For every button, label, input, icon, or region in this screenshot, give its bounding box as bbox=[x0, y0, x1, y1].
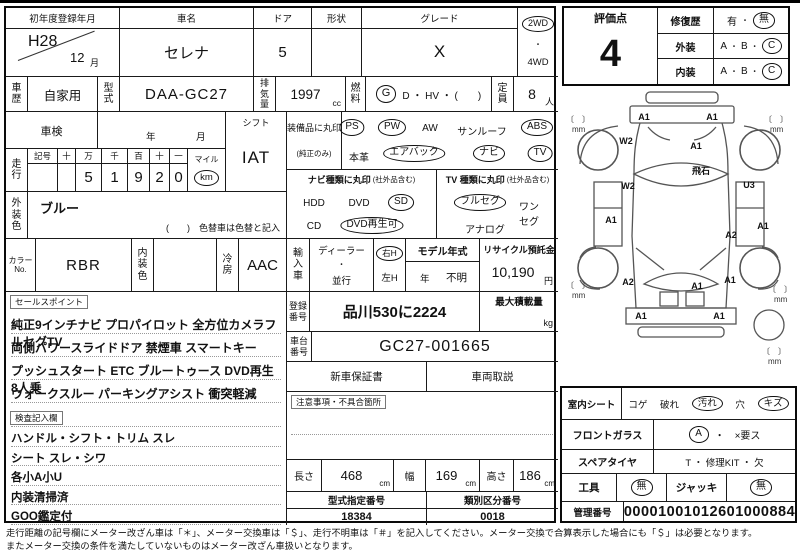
car-damage-diagram: A1 A1 W2 A1 飛石 W2 U3 A1 A1 A2 A2 A1 A1 A… bbox=[560, 86, 797, 386]
model-year-unit: 年 bbox=[420, 271, 430, 285]
grade-value: X bbox=[362, 29, 517, 75]
windshield-grade-a: A bbox=[689, 426, 709, 443]
repair-history-row: 修復歴 有 ・ 無 bbox=[658, 8, 788, 34]
color-no-label: カラーNo. bbox=[6, 239, 36, 292]
tools-value-cell: 無 bbox=[617, 474, 667, 501]
interior-label: 内装 bbox=[658, 59, 714, 84]
shift-cell: シフト IAT bbox=[226, 112, 287, 192]
height-unit: cm bbox=[544, 479, 555, 488]
max-load-cell: 最大積載量 kg bbox=[480, 292, 558, 332]
body-outline bbox=[632, 123, 730, 308]
repair-history-options: 有 ・ 無 bbox=[714, 8, 788, 33]
reg-date-cell: 初年度登録年月 H28 12 月 bbox=[6, 8, 120, 76]
model-code-value: DAA-GC27 bbox=[120, 76, 254, 112]
mm-bracket-spare: 〔 〕 bbox=[762, 347, 786, 356]
equip-navi: ナビ bbox=[473, 145, 505, 162]
exterior-options: A ・ B ・ C bbox=[714, 34, 788, 58]
repair-history-label: 修復歴 bbox=[658, 8, 714, 33]
displacement-unit: cc bbox=[333, 98, 342, 108]
car-name-cell: 車名 セレナ bbox=[120, 8, 254, 76]
grade-a: A bbox=[720, 41, 727, 52]
inspection-year-unit: 年 bbox=[146, 129, 156, 143]
equip-abs: ABS bbox=[521, 119, 553, 136]
rear-pillar-right bbox=[700, 248, 726, 270]
mileage-unit-cell: マイル km bbox=[188, 149, 226, 192]
mm-unit-spare: mm bbox=[768, 357, 782, 366]
mm-unit-mid-right: mm bbox=[774, 295, 788, 304]
warranty-cell: 新車保証書 bbox=[287, 362, 427, 392]
handle-cell: 右H 左H bbox=[374, 239, 406, 292]
length-cell: 468 cm bbox=[322, 460, 394, 492]
capacity-unit: 人 bbox=[545, 95, 554, 108]
score-cell: 評価点 4 bbox=[564, 8, 658, 84]
jack-value: 無 bbox=[750, 479, 772, 496]
sep-dot: ・ bbox=[730, 41, 738, 52]
width-unit: cm bbox=[465, 479, 476, 488]
mileage-mile-label: マイル bbox=[195, 154, 219, 165]
mileage-km-label: km bbox=[194, 170, 219, 186]
import-dealer: ディーラー bbox=[318, 243, 365, 257]
type-number-cell: 型式指定番号 18384 bbox=[287, 492, 427, 525]
drive-4wd: 4WD bbox=[527, 57, 548, 68]
equip-aw: AW bbox=[422, 123, 438, 134]
height-cell: 186 cm bbox=[514, 460, 558, 492]
mileage-header-10: 十 bbox=[150, 149, 170, 164]
drive-sep: ・ bbox=[534, 39, 542, 50]
sales-point-line: ウォークスルー パーキングアシスト 衝突軽減 bbox=[11, 380, 281, 403]
top-rule bbox=[0, 0, 800, 3]
displacement-label: 排気量 bbox=[254, 76, 276, 112]
equip-airbag: エアバック bbox=[383, 145, 445, 162]
recycle-label: リサイクル預託金 bbox=[480, 239, 558, 259]
mileage-digit-100k bbox=[58, 164, 76, 192]
navi-type-label: ナビ種類に丸印 bbox=[308, 173, 371, 186]
type-number-label: 型式指定番号 bbox=[287, 492, 426, 509]
chassis-value: GC27-001665 bbox=[312, 332, 558, 362]
capacity-label: 定員 bbox=[492, 76, 514, 112]
equip-sunroof: サンルーフ bbox=[457, 123, 506, 138]
shape-cell: 形状 bbox=[312, 8, 362, 76]
windshield-rest: ・ ×要ス bbox=[715, 427, 761, 442]
damage-front-fender-left: W2 bbox=[619, 136, 633, 146]
handle-left: 左H bbox=[381, 270, 397, 284]
tools-value: 無 bbox=[631, 479, 653, 496]
inspector-note-line: シート スレ・シワ bbox=[11, 447, 281, 467]
equipment-label: 装備品に丸印 bbox=[287, 123, 341, 134]
displacement-cell: 1997 cc bbox=[276, 76, 346, 112]
navi-dvd: DVD bbox=[348, 198, 369, 209]
damage-front-bumper-right: A1 bbox=[706, 112, 718, 122]
ac-value: AAC bbox=[239, 239, 287, 292]
wiper-arc-right bbox=[694, 127, 716, 140]
inspector-notes-label: 検査記入欄 bbox=[10, 411, 63, 425]
damage-side-left: W2 bbox=[621, 181, 635, 191]
height-label: 高さ bbox=[480, 460, 514, 492]
class-number-cell: 類別区分番号 0018 bbox=[427, 492, 558, 525]
length-unit: cm bbox=[379, 479, 390, 488]
footer-notes: 走行距離の記号欄にメーター改ざん車は「＊」、メーター交換車は「＄」、走行不明車は… bbox=[6, 527, 798, 554]
capacity-cell: 8 人 bbox=[514, 76, 558, 112]
grade-c: C bbox=[762, 38, 782, 55]
spare-tire-label: スペアタイヤ bbox=[562, 450, 654, 473]
model-code-label: 型式 bbox=[98, 76, 120, 112]
repair-no: 無 bbox=[753, 12, 775, 29]
seat-label: 室内シート bbox=[562, 388, 622, 419]
inspector-note-line: GOO鑑定付 bbox=[11, 505, 281, 525]
inspection-label: 車検 bbox=[6, 112, 98, 149]
fuel-label: 燃料 bbox=[346, 76, 366, 112]
handle-right: 右H bbox=[376, 246, 403, 261]
history-label: 車歴 bbox=[6, 76, 28, 112]
damage-side-right-lower: A1 bbox=[757, 221, 769, 231]
interior-color-label: 内装色 bbox=[132, 239, 154, 292]
mileage-digit-10k: 5 bbox=[76, 164, 102, 192]
tv-oneseg: ワンセグ bbox=[519, 198, 545, 228]
grade-cell: グレード X bbox=[362, 8, 518, 76]
model-year-label: モデル年式 bbox=[406, 239, 479, 262]
seat-burn: コゲ bbox=[628, 397, 647, 411]
front-right-wheel bbox=[740, 130, 780, 170]
history-value: 自家用 bbox=[28, 76, 98, 112]
door-label: ドア bbox=[254, 8, 311, 29]
notes-label: 注意事項・不具合箇所 bbox=[291, 395, 386, 409]
body-color-cell: 外装色 ブルー ( ) 色替車は色替と記入 bbox=[6, 192, 287, 239]
mileage-header-10k: 万 bbox=[76, 149, 102, 164]
exterior-grade-row: 外装 A ・ B ・ C bbox=[658, 34, 788, 59]
management-value: 00001001012601000884 bbox=[624, 502, 795, 521]
seat-scratch: キズ bbox=[758, 396, 789, 412]
management-row: 管理番号 00001001012601000884 bbox=[562, 502, 795, 521]
reg-year: H28 bbox=[28, 33, 57, 51]
grade-b: B bbox=[741, 41, 748, 52]
navi-type-note: (社外品含む) bbox=[373, 174, 416, 185]
mm-unit-top-left: mm bbox=[572, 125, 586, 134]
equipment-box: 装備品に丸印 (純正のみ) PS PW AW サンルーフ ABS 本革 エアバッ… bbox=[287, 112, 558, 170]
notes-line bbox=[291, 434, 553, 435]
drive-2wd: 2WD bbox=[522, 16, 554, 31]
mileage-digit-1: 0 bbox=[170, 164, 188, 192]
jack-value-cell: 無 bbox=[727, 474, 795, 501]
damage-quarter-left: A2 bbox=[622, 277, 634, 287]
max-load-label: 最大積載量 bbox=[480, 292, 558, 309]
repair-yes: 有 bbox=[727, 13, 737, 28]
drive-cell: 2WD ・ 4WD bbox=[518, 8, 558, 76]
mileage-header-1k: 千 bbox=[102, 149, 128, 164]
windshield-row: フロントガラス A ・ ×要ス bbox=[562, 420, 795, 450]
mm-bracket-top-left: 〔 〕 bbox=[566, 115, 590, 124]
score-value: 4 bbox=[564, 28, 657, 80]
rear-panel-right bbox=[686, 292, 704, 306]
shift-value: IAT bbox=[226, 130, 286, 186]
sep-dot: ・ bbox=[741, 15, 749, 26]
inspector-notes-list: ハンドル・シフト・トリム スレ シート スレ・シワ 各小A小U 内装清掃済 GO… bbox=[11, 427, 281, 525]
class-number-label: 類別区分番号 bbox=[427, 492, 558, 509]
navi-type-box: ナビ種類に丸印 (社外品含む) HDD DVD SD CD DVD再生可 bbox=[287, 170, 437, 239]
seat-stain: 汚れ bbox=[692, 396, 723, 412]
mileage-header-1: 一 bbox=[170, 149, 188, 164]
width-cell: 169 cm bbox=[426, 460, 480, 492]
equipment-label-note: (純正のみ) bbox=[297, 148, 332, 159]
left-side-strip bbox=[594, 182, 622, 246]
body-color-value: ブルー bbox=[40, 198, 79, 217]
vehicle-auction-sheet: 初年度登録年月 H28 12 月 車名 セレナ ドア 5 形状 グレード X 2… bbox=[0, 0, 800, 557]
exterior-label: 外装 bbox=[658, 34, 714, 58]
registration-value: 品川530に2224 bbox=[310, 292, 480, 332]
sales-point-line: 純正9インチナビ プロパイロット 全方位カメラフルセグTV bbox=[11, 311, 281, 334]
tv-type-label: TV 種類に丸印 bbox=[446, 173, 505, 186]
inspector-note-line: ハンドル・シフト・トリム スレ bbox=[11, 427, 281, 447]
door-cell: ドア 5 bbox=[254, 8, 312, 76]
spare-tire-circle bbox=[754, 310, 784, 340]
sep-dot: ・ bbox=[751, 66, 759, 77]
damage-side-right: U3 bbox=[743, 180, 755, 190]
front-top-bar bbox=[646, 92, 718, 103]
car-name-value: セレナ bbox=[120, 29, 253, 75]
damage-rear-bumper-left: A1 bbox=[635, 311, 647, 321]
windshield-shape bbox=[634, 163, 728, 186]
recycle-unit: 円 bbox=[544, 274, 553, 287]
mileage-sign bbox=[28, 164, 58, 192]
mm-bracket-top-right: 〔 〕 bbox=[764, 115, 788, 124]
reg-month: 12 bbox=[70, 50, 84, 65]
mm-bracket-mid-left: 〔 〕 bbox=[566, 281, 590, 290]
rear-bottom-bar bbox=[638, 327, 724, 337]
shape-value bbox=[312, 29, 361, 75]
navi-sd: SD bbox=[388, 194, 414, 211]
tv-fullseg: フルセグ bbox=[454, 194, 506, 211]
score-label: 評価点 bbox=[564, 8, 657, 28]
mm-unit-mid-left: mm bbox=[572, 291, 586, 300]
interior-color-value bbox=[154, 239, 217, 292]
seat-row: 室内シート コゲ 破れ 汚れ 穴 キズ bbox=[562, 388, 795, 420]
mileage-digit-100: 9 bbox=[128, 164, 150, 192]
import-label: 輸入車 bbox=[287, 239, 310, 292]
mileage-header-sign: 記号 bbox=[28, 149, 58, 164]
inspector-note-line: 内装清掃済 bbox=[11, 486, 281, 506]
sep-dot: ・ bbox=[751, 41, 759, 52]
car-name-label: 車名 bbox=[120, 8, 253, 29]
footer-line-2: またメーター交換の条件を満たしていないものはメーター改ざん車扱いとなります。 bbox=[6, 540, 798, 553]
sales-points-label: セールスポイント bbox=[10, 295, 88, 309]
windshield-label: フロントガラス bbox=[562, 420, 654, 449]
reg-date-label: 初年度登録年月 bbox=[6, 8, 119, 29]
reg-month-unit: 月 bbox=[90, 56, 99, 69]
windshield-options: A ・ ×要ス bbox=[654, 420, 795, 449]
equip-pw: PW bbox=[378, 119, 406, 136]
tools-row: 工具 無 ジャッキ 無 bbox=[562, 474, 795, 502]
right-side-strip bbox=[736, 182, 764, 246]
grade-a: A bbox=[720, 66, 727, 77]
navi-dvd-playback: DVD再生可 bbox=[340, 217, 403, 234]
manual-cell: 車両取説 bbox=[427, 362, 558, 392]
mileage-digit-1k: 1 bbox=[102, 164, 128, 192]
seat-hole: 穴 bbox=[735, 397, 745, 411]
tools-label: 工具 bbox=[562, 474, 617, 501]
max-load-unit: kg bbox=[543, 318, 553, 328]
management-label: 管理番号 bbox=[562, 502, 624, 521]
sales-point-line: プッシュスタート ETC ブルートゥース DVD再生 8人乗 bbox=[11, 357, 281, 380]
damage-rear-right: A1 bbox=[724, 275, 736, 285]
inspection-cell: 車検 年 月 bbox=[6, 112, 226, 149]
tv-type-box: TV 種類に丸印 (社外品含む) フルセグ ワンセグ アナログ bbox=[437, 170, 558, 239]
tv-type-note: (社外品含む) bbox=[507, 174, 550, 185]
rear-pillar-left bbox=[636, 248, 664, 270]
damage-front-bumper-left: A1 bbox=[638, 112, 650, 122]
model-year-cell: モデル年式 年 不明 bbox=[406, 239, 480, 292]
fuel-gasoline: G bbox=[376, 85, 397, 103]
damage-rear-gate: A1 bbox=[691, 281, 703, 291]
mileage-label: 走行 bbox=[6, 149, 28, 192]
jack-label: ジャッキ bbox=[667, 474, 727, 501]
inspector-note-line: 各小A小U bbox=[11, 466, 281, 486]
rear-glass-shape bbox=[644, 273, 718, 291]
damage-hood: A1 bbox=[690, 141, 702, 151]
navi-cd: CD bbox=[307, 221, 321, 232]
shape-label: 形状 bbox=[312, 8, 361, 29]
equip-ps: PS bbox=[339, 119, 364, 136]
seat-options: コゲ 破れ 汚れ 穴 キズ bbox=[622, 388, 795, 419]
damage-quarter-right: A2 bbox=[725, 230, 737, 240]
seat-tear: 破れ bbox=[660, 397, 679, 411]
mileage-header-100: 百 bbox=[128, 149, 150, 164]
mm-bracket-mid-right: 〔 〕 bbox=[768, 285, 792, 294]
footer-line-1: 走行距離の記号欄にメーター改ざん車は「＊」、メーター交換車は「＄」、走行不明車は… bbox=[6, 527, 798, 540]
inspection-month-unit: 月 bbox=[196, 129, 206, 143]
spare-tire-row: スペアタイヤ T ・ 修理KIT ・ 欠 bbox=[562, 450, 795, 474]
type-number-value: 18384 bbox=[287, 509, 426, 525]
notes-cell: 注意事項・不具合箇所 bbox=[287, 392, 558, 460]
mileage-header-100k: 十 bbox=[58, 149, 76, 164]
model-year-value: 不明 bbox=[446, 270, 467, 285]
rear-right-wheel bbox=[740, 248, 780, 288]
equip-leather: 本革 bbox=[349, 149, 369, 164]
sales-points-list: 純正9インチナビ プロパイロット 全方位カメラフルセグTV 両側パワースライドド… bbox=[11, 311, 281, 427]
tv-analog: アナログ bbox=[465, 221, 505, 236]
ac-label: 冷房 bbox=[217, 239, 239, 292]
equipment-label-cell: 装備品に丸印 (純正のみ) bbox=[287, 112, 342, 170]
spare-tire-options: T ・ 修理KIT ・ 欠 bbox=[654, 450, 795, 473]
shift-label: シフト bbox=[226, 114, 286, 130]
chassis-label: 車台番号 bbox=[287, 332, 312, 362]
damage-windshield: 飛石 bbox=[691, 166, 710, 176]
condition-table: 室内シート コゲ 破れ 汚れ 穴 キズ フロントガラス A ・ ×要ス スペアタ… bbox=[560, 386, 797, 523]
main-table: 初年度登録年月 H28 12 月 車名 セレナ ドア 5 形状 グレード X 2… bbox=[4, 6, 556, 523]
rear-panel-left bbox=[660, 292, 678, 306]
wiper-arc-left bbox=[648, 127, 670, 140]
navi-hdd: HDD bbox=[303, 198, 325, 209]
front-left-fender-arc bbox=[580, 126, 618, 164]
damage-door-left: A1 bbox=[605, 215, 617, 225]
grade-b: B bbox=[741, 66, 748, 77]
front-left-wheel bbox=[578, 130, 618, 170]
equip-tv: TV bbox=[528, 145, 553, 162]
import-parallel: 並行 bbox=[332, 273, 351, 287]
fuel-options: D ・ HV ・ ( ) bbox=[402, 87, 481, 102]
registration-label: 登録番号 bbox=[287, 292, 310, 332]
width-label: 幅 bbox=[394, 460, 426, 492]
mileage-digit-10: 2 bbox=[150, 164, 170, 192]
damage-rear-bumper-right: A1 bbox=[713, 311, 725, 321]
import-dealer-cell: ディーラー ・ 並行 bbox=[310, 239, 374, 292]
sep-dot: ・ bbox=[730, 66, 738, 77]
interior-grade-row: 内装 A ・ B ・ C bbox=[658, 59, 788, 84]
color-no-value: RBR bbox=[36, 239, 132, 292]
recycle-cell: リサイクル預託金 10,190 円 bbox=[480, 239, 558, 292]
left-bottom-region: セールスポイント 純正9インチナビ プロパイロット 全方位カメラフルセグTV 両… bbox=[6, 292, 287, 525]
length-label: 長さ bbox=[287, 460, 322, 492]
evaluation-box: 評価点 4 修復歴 有 ・ 無 外装 A ・ B ・ C 内装 A bbox=[562, 6, 790, 86]
door-value: 5 bbox=[254, 29, 311, 75]
body-color-label: 外装色 bbox=[6, 192, 28, 239]
body-color-note: ( ) 色替車は色替と記入 bbox=[166, 221, 280, 234]
mm-unit-top-right: mm bbox=[770, 125, 784, 134]
interior-options: A ・ B ・ C bbox=[714, 59, 788, 84]
fuel-cell: G D ・ HV ・ ( ) bbox=[366, 76, 492, 112]
import-sep: ・ bbox=[338, 259, 346, 270]
grade-c: C bbox=[762, 63, 782, 80]
grade-label: グレード bbox=[362, 8, 517, 29]
class-number-value: 0018 bbox=[427, 509, 558, 525]
